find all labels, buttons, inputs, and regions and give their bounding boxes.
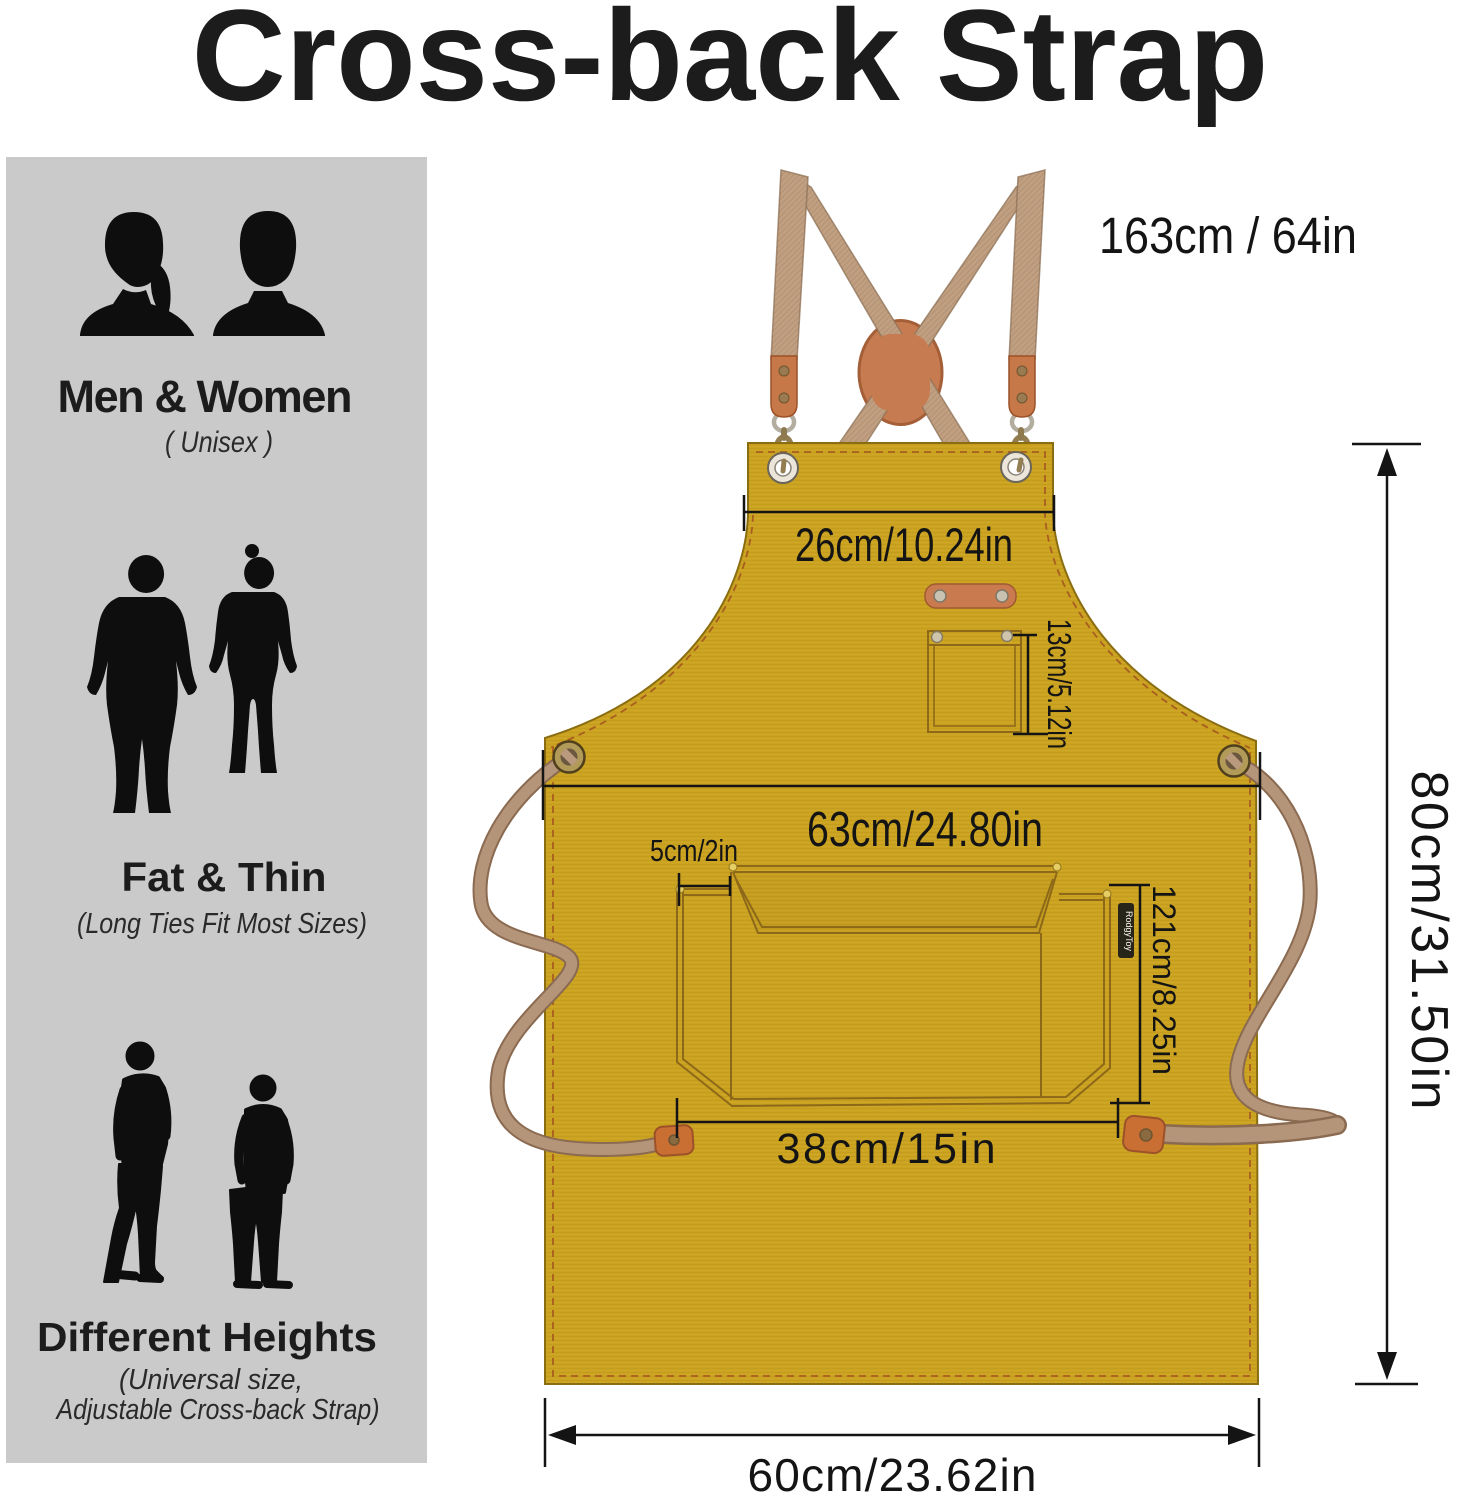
svg-text:Fat & Thin: Fat & Thin xyxy=(122,854,327,900)
svg-text:Men & Women: Men & Women xyxy=(58,371,353,422)
svg-text:121cm/8.25in: 121cm/8.25in xyxy=(1146,885,1182,1075)
svg-text:80cm/31.50in: 80cm/31.50in xyxy=(1400,771,1458,1110)
svg-text:( Unisex ): ( Unisex ) xyxy=(165,426,273,459)
svg-text:(Universal size,: (Universal size, xyxy=(119,1364,303,1396)
svg-text:Adjustable Cross-back Strap): Adjustable Cross-back Strap) xyxy=(55,1394,380,1426)
svg-text:26cm/10.24in: 26cm/10.24in xyxy=(795,518,1013,571)
svg-text:60cm/23.62in: 60cm/23.62in xyxy=(748,1449,1037,1500)
svg-text:5cm/2in: 5cm/2in xyxy=(650,833,738,868)
svg-text:38cm/15in: 38cm/15in xyxy=(777,1125,996,1173)
svg-text:Cross-back Strap: Cross-back Strap xyxy=(192,0,1269,128)
svg-text:63cm/24.80in: 63cm/24.80in xyxy=(807,803,1043,857)
svg-text:RodgyToy: RodgyToy xyxy=(1124,911,1134,952)
svg-text:13cm/5.12in: 13cm/5.12in xyxy=(1041,619,1078,749)
svg-text:(Long Ties Fit Most Sizes): (Long Ties Fit Most Sizes) xyxy=(77,908,367,940)
svg-text:163cm / 64in: 163cm / 64in xyxy=(1099,207,1357,264)
svg-text:Different Heights: Different Heights xyxy=(37,1314,377,1360)
